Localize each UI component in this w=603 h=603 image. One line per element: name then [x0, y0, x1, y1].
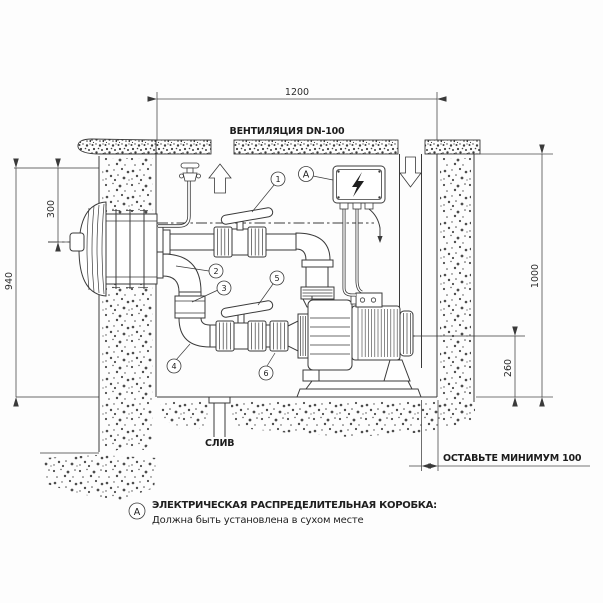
box-screw [378, 196, 380, 198]
union-coupling [301, 287, 334, 299]
pipe-segment [210, 325, 216, 347]
air-valve-knob [180, 174, 184, 178]
valve-body [234, 323, 248, 349]
callout-4: 4 [171, 362, 176, 371]
repair-sleeve [175, 296, 205, 318]
electrical-junction-box [333, 166, 385, 295]
air-valve-body [183, 173, 197, 181]
pipe-segment [306, 267, 328, 287]
callout-leader [313, 176, 333, 180]
elbow-flange [302, 260, 333, 267]
legend-marker: A [134, 507, 141, 518]
callout-6: 6 [263, 369, 268, 378]
pump-foot [303, 370, 319, 381]
elbow-90 [163, 254, 201, 292]
drain-collar [209, 397, 230, 403]
air-valve-stem [187, 168, 193, 173]
valve-handle [221, 300, 274, 318]
callout-leader [267, 353, 275, 366]
dim-940: 940 [4, 272, 15, 290]
power-cable-core [344, 209, 356, 295]
box-screw [378, 170, 380, 172]
air-regulator [158, 163, 201, 226]
power-cable [357, 209, 362, 292]
pump-unit [297, 293, 421, 397]
pipe-segment [264, 234, 296, 250]
cable-arrowhead [377, 236, 382, 243]
callout-1: 1 [275, 175, 280, 184]
motor-foot [384, 360, 410, 381]
dim-300: 300 [46, 200, 57, 218]
ball-valve-discharge [214, 207, 273, 257]
dim-260: 260 [503, 359, 514, 377]
union-coupling [270, 321, 288, 351]
ball-valve-suction [216, 300, 273, 351]
floor-slab [160, 401, 208, 430]
dim-1200: 1200 [285, 87, 309, 98]
valve-handle [221, 207, 274, 225]
pool-wall [103, 158, 153, 452]
callout-leader [176, 344, 190, 360]
drain [209, 397, 230, 437]
ventilation-label: ВЕНТИЛЯЦИЯ DN-100 [230, 126, 346, 137]
suction-port-flange [157, 252, 163, 278]
right-wall [440, 158, 471, 416]
legend: A ЭЛЕКТРИЧЕСКАЯ РАСПРЕДЕЛИТЕЛЬНАЯ КОРОБК… [129, 500, 437, 526]
inlet-cone [288, 321, 298, 351]
conduit-flange [163, 230, 170, 254]
ground-lower-left [44, 455, 158, 500]
air-valve-handle [181, 163, 199, 168]
callout-3: 3 [221, 284, 226, 293]
callout-A: A [303, 170, 310, 181]
drain-label: СЛИВ [205, 438, 234, 449]
pool-coping [78, 139, 156, 154]
cable-gland [340, 203, 348, 209]
cable-gland [353, 203, 361, 209]
mounting-plinth [297, 389, 421, 397]
box-screw [337, 196, 339, 198]
air-hose [158, 181, 189, 226]
pipe-segment [170, 234, 216, 250]
callout-5: 5 [274, 274, 279, 283]
base-plate [306, 381, 412, 389]
installation-diagram-page: 1200 300 940 1000 260 ОСТАВЬТЕ МИНИМУМ 1… [0, 0, 603, 603]
air-valve-knob [197, 174, 201, 178]
supply-cable [369, 209, 380, 238]
motor [351, 293, 413, 381]
valve-body [232, 229, 248, 255]
installation-diagram: 1200 300 940 1000 260 ОСТАВЬТЕ МИНИМУМ 1… [0, 0, 603, 603]
power-cable [344, 209, 356, 295]
ceiling-slab [425, 140, 480, 154]
motor-fan-cover [400, 311, 413, 356]
elbow-90 [296, 233, 330, 260]
legend-title: ЭЛЕКТРИЧЕСКАЯ РАСПРЕДЕЛИТЕЛЬНАЯ КОРОБКА: [152, 500, 437, 511]
counterflow-jet-unit [70, 202, 170, 296]
callout-2: 2 [213, 267, 218, 276]
cable-gland [365, 203, 373, 209]
arrow-down-icon [400, 157, 421, 187]
ceiling-slab [234, 140, 398, 154]
dim-1000: 1000 [530, 264, 541, 288]
legend-subtitle: Должна быть установлена в сухом месте [152, 515, 364, 526]
jet-nozzle [70, 233, 84, 251]
min-clearance-label: ОСТАВЬТЕ МИНИМУМ 100 [443, 453, 582, 464]
pump-strainer-body [308, 300, 352, 370]
wall-conduit-body [106, 214, 157, 284]
arrow-up-icon [209, 164, 231, 193]
ceiling-slab [156, 140, 211, 154]
suction-line [163, 254, 298, 351]
motor-body [352, 306, 400, 360]
elbow-90 [179, 318, 210, 347]
air-hose-core [158, 181, 189, 226]
box-screw [337, 170, 339, 172]
